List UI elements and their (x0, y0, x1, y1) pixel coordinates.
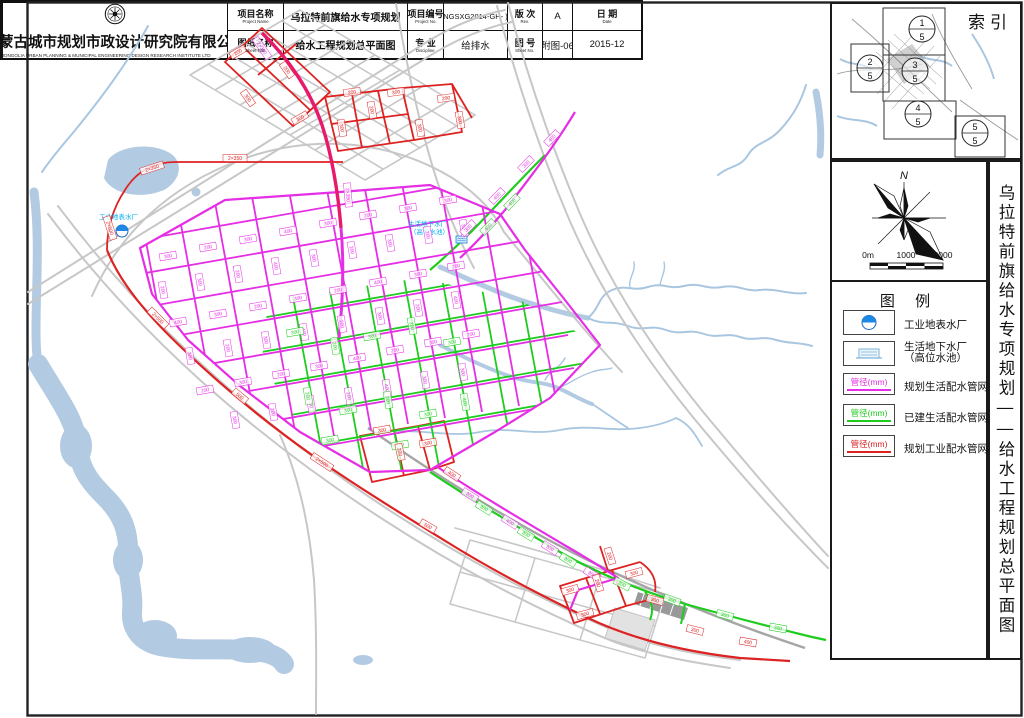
index-sheet-circle: 15 (909, 16, 935, 42)
svg-text:200: 200 (467, 331, 476, 338)
svg-text:200: 200 (201, 387, 210, 394)
svg-text:300: 300 (404, 205, 413, 212)
compass-rose-icon (872, 182, 946, 260)
svg-text:300: 300 (262, 336, 269, 345)
legend-label-planned-domestic: 规划生活配水管网 (904, 379, 988, 394)
index-sheet-circle: 25 (857, 55, 883, 81)
svg-text:200: 200 (424, 231, 431, 240)
legend-section: 图 例 工业地表水厂 生活地下水厂 （高位水池） (832, 282, 986, 660)
svg-text:2×500: 2×500 (314, 456, 329, 469)
svg-text:5: 5 (972, 136, 977, 146)
domestic-ground-plant-symbol (456, 236, 467, 243)
svg-text:300: 300 (214, 311, 223, 318)
svg-text:200: 200 (345, 392, 352, 401)
svg-text:3: 3 (912, 60, 917, 70)
north-label: N (900, 170, 908, 182)
svg-text:300: 300 (429, 339, 438, 346)
svg-text:400: 400 (374, 279, 383, 286)
svg-text:400: 400 (174, 319, 183, 326)
svg-text:400: 400 (353, 355, 362, 362)
svg-text:300: 300 (239, 379, 248, 386)
legend-title: 图 例 (832, 290, 986, 311)
svg-text:200: 200 (234, 270, 241, 279)
svg-text:300: 300 (392, 89, 401, 96)
svg-text:400: 400 (452, 296, 459, 305)
legend-label-existing-domestic: 已建生活配水管网 (904, 410, 988, 425)
pipe-diameter-labels: 3002003004003002003003002003002004003002… (103, 36, 787, 647)
road-network (28, 3, 828, 714)
svg-text:400: 400 (272, 262, 279, 271)
svg-text:200: 200 (452, 263, 461, 270)
svg-text:300: 300 (378, 427, 387, 434)
svg-text:300: 300 (196, 278, 203, 287)
svg-text:300: 300 (310, 254, 317, 263)
svg-text:0m: 0m (862, 250, 874, 260)
svg-text:200: 200 (348, 89, 357, 96)
svg-text:400: 400 (743, 639, 752, 646)
svg-text:300: 300 (231, 416, 238, 425)
legend-symbol-industrial-plant (843, 310, 895, 335)
svg-text:300: 300 (338, 124, 345, 133)
svg-text:400: 400 (461, 398, 468, 407)
svg-text:2000: 2000 (934, 250, 953, 260)
svg-text:4: 4 (915, 103, 920, 113)
svg-text:300: 300 (186, 352, 193, 361)
svg-text:300: 300 (386, 239, 393, 248)
legend-label-industrial-plant: 工业地表水厂 (904, 317, 967, 332)
svg-text:300: 300 (456, 116, 463, 125)
svg-text:5: 5 (867, 71, 872, 81)
svg-text:200: 200 (159, 286, 166, 295)
svg-text:300: 300 (326, 437, 335, 444)
svg-text:300: 300 (414, 271, 423, 278)
svg-text:300: 300 (294, 295, 303, 302)
svg-text:300: 300 (344, 407, 353, 414)
svg-text:200: 200 (304, 392, 311, 401)
legend-symbol-existing-domestic: 管径(mm) (843, 404, 895, 426)
svg-text:2×350: 2×350 (228, 156, 242, 162)
svg-text:5: 5 (915, 117, 920, 127)
index-title: 索引 (968, 8, 1012, 33)
svg-text:300: 300 (565, 587, 575, 595)
svg-text:300: 300 (164, 253, 173, 260)
svg-text:300: 300 (629, 570, 639, 578)
svg-text:300: 300 (324, 220, 333, 227)
svg-text:300: 300 (424, 411, 433, 418)
svg-text:2: 2 (867, 57, 872, 67)
drawing-sheet: 工业地表水厂 生活地下水厂 （高位水池） 3002003004003002003… (0, 0, 1024, 718)
svg-text:300: 300 (690, 627, 700, 635)
svg-text:200: 200 (269, 408, 276, 417)
svg-text:200: 200 (224, 344, 231, 353)
svg-text:300: 300 (291, 329, 300, 336)
svg-text:200: 200 (204, 244, 213, 251)
svg-text:300: 300 (376, 312, 383, 321)
svg-text:200: 200 (414, 304, 421, 313)
svg-text:200: 200 (368, 106, 375, 115)
svg-text:200: 200 (391, 347, 400, 354)
legend-label-planned-industrial: 规划工业配水管网 (904, 441, 988, 456)
index-sheet-circle: 35 (902, 58, 928, 84)
svg-text:200: 200 (254, 303, 263, 310)
svg-text:5: 5 (919, 32, 924, 42)
right-column: N 0m 1000 2000 (830, 160, 988, 660)
svg-text:2×350: 2×350 (344, 188, 351, 203)
svg-text:200: 200 (395, 447, 403, 457)
index-sheet-circle: 45 (905, 101, 931, 127)
svg-text:300: 300 (368, 333, 377, 340)
industrial-surface-plant-symbol (116, 225, 128, 237)
legend-symbol-domestic-plant (843, 341, 895, 366)
svg-text:200: 200 (348, 246, 355, 255)
svg-text:5: 5 (972, 122, 977, 132)
pipes-existing-domestic (250, 155, 826, 640)
svg-text:400: 400 (284, 228, 293, 235)
scale-bar: 0m 1000 2000 (862, 250, 953, 269)
svg-text:200: 200 (331, 342, 338, 351)
svg-text:300: 300 (424, 440, 433, 447)
svg-text:5: 5 (912, 74, 917, 84)
index-panel: 1525354555 索引 (830, 2, 1022, 160)
svg-text:300: 300 (244, 236, 253, 243)
svg-text:200: 200 (364, 212, 373, 219)
svg-text:300: 300 (421, 376, 428, 385)
svg-text:200: 200 (442, 95, 451, 102)
legend-label-domestic-plant: 生活地下水厂 （高位水池） (904, 342, 967, 364)
svg-text:300: 300 (773, 625, 782, 632)
svg-text:300: 300 (444, 197, 453, 204)
pipes-planned-domestic (128, 112, 618, 610)
svg-text:1000: 1000 (897, 250, 916, 260)
svg-text:2×500: 2×500 (104, 221, 114, 236)
svg-text:300: 300 (416, 124, 423, 133)
index-sheet-circle: 55 (962, 120, 988, 146)
svg-text:300: 300 (448, 339, 457, 346)
svg-text:1: 1 (919, 18, 924, 28)
svg-text:200: 200 (384, 396, 391, 405)
sheet-title-vertical: 乌拉特前旗给水专项规划——给水工程规划总平面图 (988, 160, 1022, 660)
compass-section: N 0m 1000 2000 (832, 162, 986, 282)
legend-symbol-planned-domestic: 管径(mm) (843, 373, 895, 395)
legend-symbol-planned-industrial: 管径(mm) (843, 435, 895, 457)
